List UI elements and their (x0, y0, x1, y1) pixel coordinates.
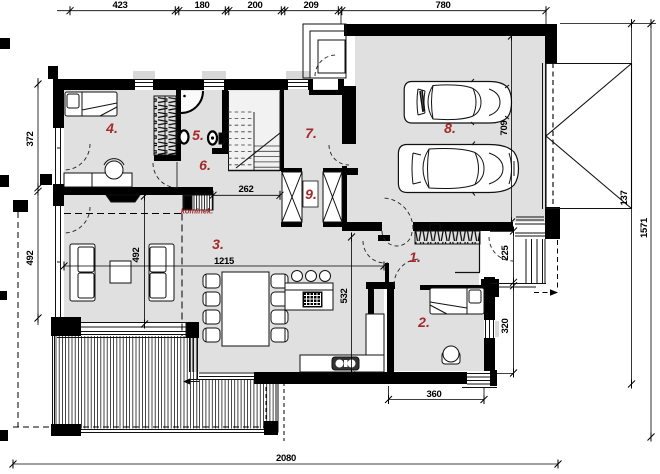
svg-text:6.: 6. (199, 157, 211, 173)
svg-text:1571: 1571 (639, 217, 650, 238)
svg-text:780: 780 (436, 0, 451, 11)
svg-text:372: 372 (25, 132, 36, 147)
svg-text:8.: 8. (444, 120, 456, 136)
svg-text:360: 360 (427, 389, 442, 400)
svg-text:492: 492 (25, 251, 36, 266)
svg-text:320: 320 (500, 319, 511, 334)
svg-text:180: 180 (195, 0, 210, 11)
svg-text:200: 200 (248, 0, 263, 11)
svg-text:5.: 5. (192, 127, 204, 143)
svg-text:kominek.: kominek. (181, 207, 214, 216)
svg-text:1.: 1. (409, 249, 421, 265)
svg-text:137: 137 (619, 191, 630, 206)
svg-text:262: 262 (239, 184, 254, 195)
svg-text:3.: 3. (212, 236, 224, 252)
svg-text:2.: 2. (417, 314, 430, 330)
svg-text:209: 209 (304, 0, 319, 11)
svg-text:709: 709 (499, 121, 510, 136)
svg-text:9.: 9. (305, 186, 317, 202)
svg-text:7.: 7. (305, 125, 317, 141)
svg-text:4.: 4. (105, 120, 118, 136)
svg-text:2080: 2080 (276, 453, 296, 464)
svg-text:1215: 1215 (214, 256, 235, 267)
svg-text:532: 532 (339, 289, 350, 304)
svg-text:423: 423 (113, 0, 128, 11)
svg-text:225: 225 (500, 245, 511, 261)
svg-text:492: 492 (131, 248, 142, 263)
